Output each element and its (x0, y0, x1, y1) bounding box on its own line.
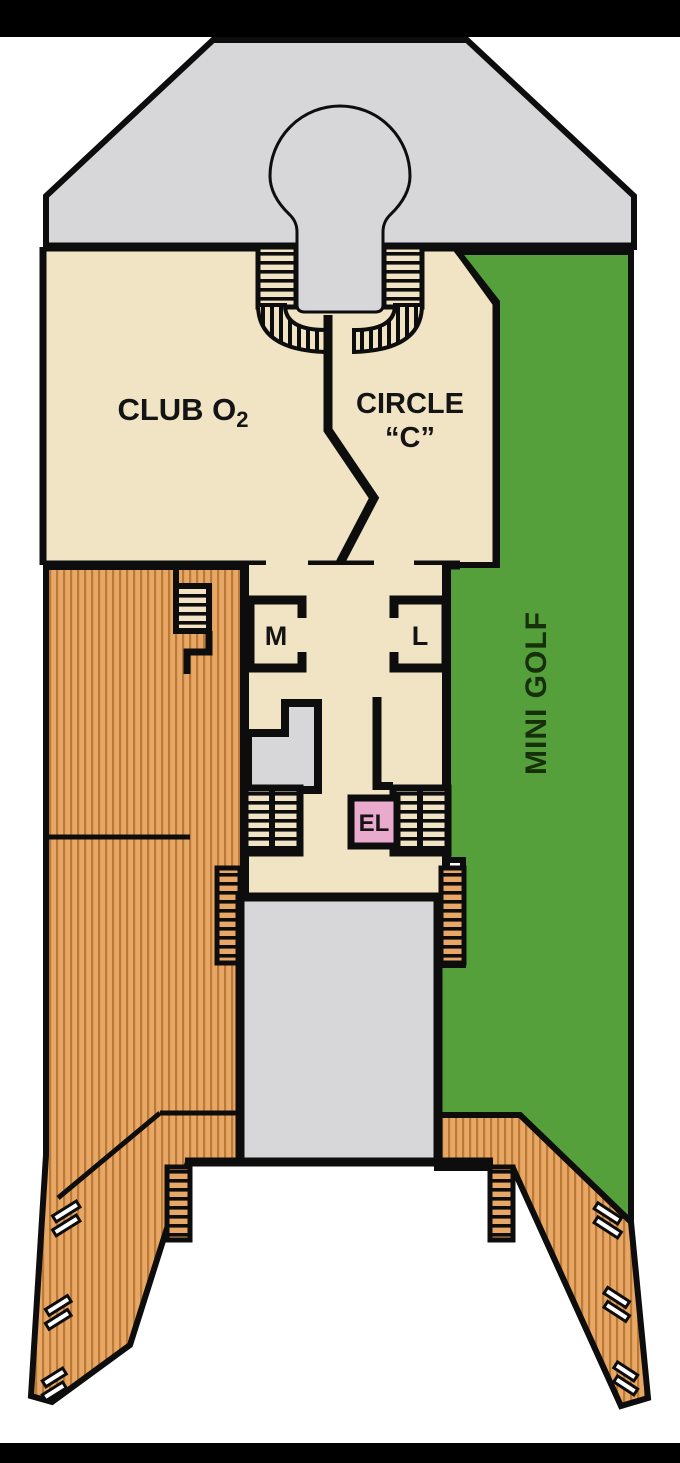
mini-golf-label: MINI GOLF (520, 611, 553, 775)
club-o2-label: CLUB O2 (117, 392, 248, 432)
deck-plan-drawing: CLUB O2 CIRCLE “C” M L EL MINI GOLF (0, 0, 680, 1463)
mens-room-label: M (265, 621, 288, 651)
circle-c-label-line2: “C” (385, 422, 435, 454)
mens-room-door (294, 618, 308, 652)
club-o2-label-sub: 2 (236, 407, 248, 432)
deck-plan-page: CLUB O2 CIRCLE “C” M L EL MINI GOLF (0, 0, 680, 1463)
staircase-left (245, 788, 300, 853)
funnel-stair-left-column (258, 247, 296, 307)
ladies-room-door (388, 618, 402, 652)
ladder-stern-left (167, 1167, 190, 1240)
club-o2-label-main: CLUB O (117, 392, 236, 427)
stair-run (176, 586, 209, 631)
circle-c-label-line1: CIRCLE (356, 388, 464, 420)
ladder-mid-right (441, 868, 464, 963)
ladies-room-label: L (412, 621, 429, 651)
funnel-stair-right-column (384, 247, 422, 307)
staircase-right (393, 788, 448, 853)
ladder-stern-right (490, 1167, 513, 1240)
elevator-label: EL (359, 810, 390, 837)
central-structure (240, 897, 438, 1162)
